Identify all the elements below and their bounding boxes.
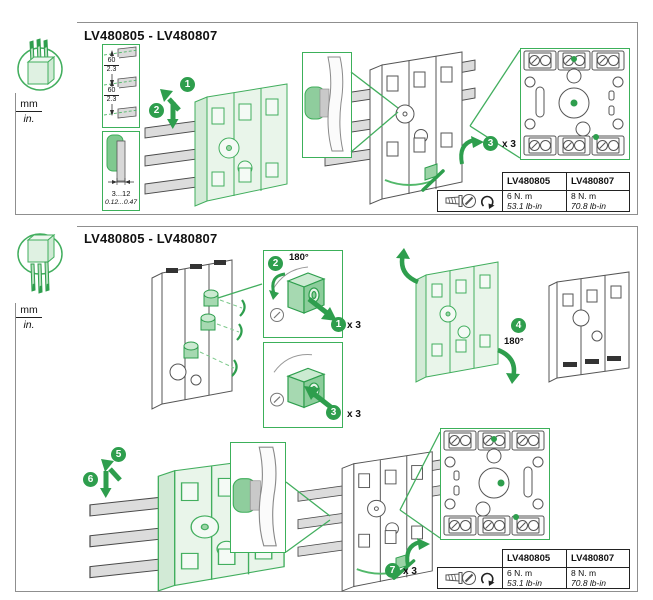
units-label: mm in. — [16, 304, 42, 331]
busbar-clamp-detail-box — [302, 52, 352, 158]
front-face-detail-box — [520, 48, 630, 160]
busbar-clamp-detail-box — [230, 442, 286, 553]
torque-table-header: LV480807 — [566, 172, 630, 191]
thickness-mm-label: 3...12 — [103, 189, 139, 198]
spacing-mm: 60 — [104, 57, 119, 66]
hook-arrow-icon — [404, 538, 430, 568]
callout-pointer-lines — [350, 60, 400, 160]
rotation-180-label: 180° — [289, 252, 309, 263]
callout-pointer-lines — [396, 426, 442, 542]
curved-arrow-icon — [494, 348, 520, 384]
step-badge: 2 — [268, 256, 283, 271]
unit-imperial: in. — [16, 318, 42, 331]
step-badge: 6 — [83, 472, 98, 487]
spacing-in: 2.3 — [104, 96, 119, 104]
repeat-label: x 3 — [347, 409, 361, 420]
vertical-busbars-up-icon — [16, 36, 64, 94]
torque-table-header: LV480805 — [502, 172, 567, 191]
torque-table-icon-cell — [437, 567, 503, 589]
panel1-frame-bottom — [15, 214, 638, 215]
down-arrow-icon — [100, 471, 112, 498]
torque-metric: 8 N. m — [571, 191, 596, 201]
vertical-busbars-down-icon — [16, 228, 64, 298]
front-face-detail-box — [440, 428, 550, 540]
torque-metric: 6 N. m — [507, 568, 532, 578]
step-badge: 3 — [326, 405, 341, 420]
front-face-detail-illustration — [521, 49, 627, 157]
screw-icon — [445, 193, 477, 209]
repeat-label: x 3 — [403, 566, 417, 577]
thickness-in-label: 0.12...0.47 — [103, 199, 139, 206]
torque-value-cell: 6 N. m 53.1 lb-in — [502, 567, 567, 589]
busbar-clamp-detail-illustration — [231, 443, 283, 550]
torque-table-header: LV480805 — [502, 549, 567, 568]
torque-value-cell: 8 N. m 70.8 lb-in — [566, 190, 630, 212]
switch-disconnector-green-illustration — [408, 256, 506, 382]
spacing-dimension-label: 60 2.3 — [104, 87, 119, 104]
clockwise-rotation-icon — [480, 570, 495, 586]
panel1-frame-top — [77, 22, 638, 23]
step-badge: 4 — [511, 318, 526, 333]
hook-arrow-icon — [458, 136, 484, 166]
torque-value-cell: 8 N. m 70.8 lb-in — [566, 567, 630, 589]
spacing-in: 2.3 — [104, 66, 119, 74]
panel2-title: LV480805 - LV480807 — [84, 231, 217, 246]
front-face-detail-illustration — [441, 429, 547, 537]
torque-imperial: 70.8 lb-in — [571, 201, 606, 211]
repeat-label: x 3 — [502, 139, 516, 150]
callout-pointer-lines — [284, 468, 334, 556]
torque-value-cell: 6 N. m 53.1 lb-in — [502, 190, 567, 212]
curved-arrow-icon — [269, 272, 287, 300]
torque-imperial: 70.8 lb-in — [571, 578, 606, 588]
busbar-clamp-detail-illustration — [303, 53, 349, 155]
step-badge: 7 — [385, 563, 400, 578]
unit-metric: mm — [16, 98, 42, 112]
panel2-frame-left — [15, 303, 16, 592]
busbar-thickness-dimension-box: 3...12 0.12...0.47 — [102, 131, 140, 211]
callout-pointer-lines — [216, 280, 264, 302]
torque-metric: 6 N. m — [507, 191, 532, 201]
panel1-frame-right — [637, 22, 638, 215]
curved-arrow-icon — [396, 248, 422, 284]
down-arrow-icon — [167, 102, 179, 129]
step-badge: 3 — [483, 136, 498, 151]
step-badge: 1 — [331, 317, 346, 332]
spacing-dimension-label: 60 2.3 — [104, 57, 119, 74]
switch-disconnector-outline-illustration — [543, 268, 635, 382]
torque-metric: 8 N. m — [571, 568, 596, 578]
clockwise-rotation-icon — [480, 193, 495, 209]
instruction-sheet: LV480805 - LV480807 mm in. 60 2.3 — [0, 0, 653, 600]
panel1-title: LV480805 - LV480807 — [84, 28, 217, 43]
busbar-illustration — [90, 497, 161, 577]
torque-imperial: 53.1 lb-in — [507, 578, 542, 588]
units-label: mm in. — [16, 98, 42, 125]
step-badge: 2 — [149, 103, 164, 118]
step-badge: 5 — [111, 447, 126, 462]
switch-disconnector-outline-illustration — [138, 252, 256, 410]
panel2-frame-right — [637, 226, 638, 592]
busbar-thickness-illustration — [105, 134, 137, 186]
unit-imperial: in. — [16, 112, 42, 125]
step-badge: 1 — [180, 77, 195, 92]
torque-table-header: LV480807 — [566, 549, 630, 568]
spacing-mm: 60 — [104, 87, 119, 96]
rotation-180-label: 180° — [504, 336, 524, 347]
torque-imperial: 53.1 lb-in — [507, 201, 542, 211]
busbar-illustration — [145, 121, 197, 194]
torque-table-icon-cell — [437, 190, 503, 212]
unit-metric: mm — [16, 304, 42, 318]
screw-icon — [445, 570, 477, 586]
panel2-frame-top — [77, 226, 638, 227]
repeat-label: x 3 — [347, 320, 361, 331]
